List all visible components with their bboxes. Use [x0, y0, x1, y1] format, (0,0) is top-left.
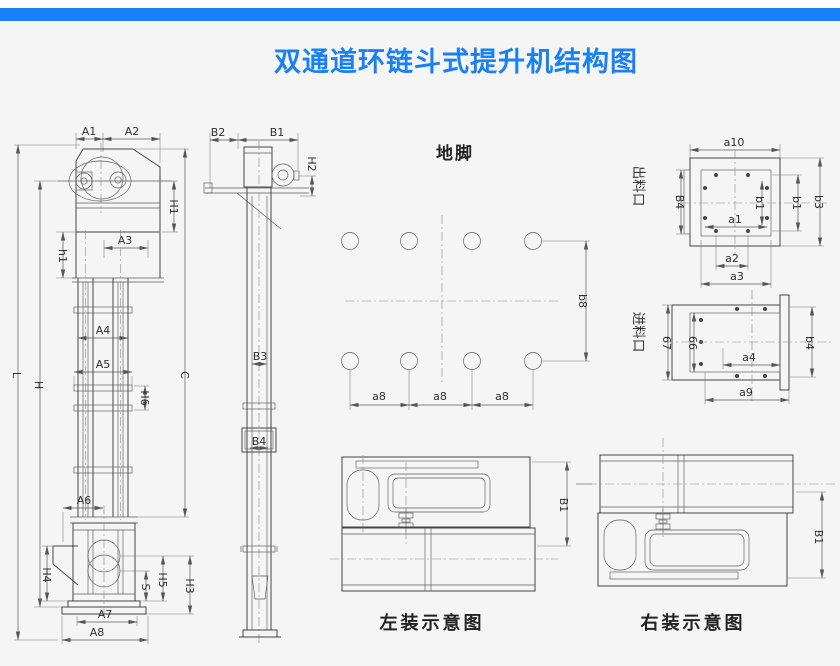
dim-label-A4: A4: [96, 324, 111, 337]
dim-label-A6: A6: [77, 494, 92, 507]
dim-label-b1-inner: b1: [753, 196, 766, 210]
dim-label-B1-left-install: B1: [557, 498, 570, 513]
dim-label-B1-right-install: B1: [812, 530, 825, 545]
dim-label-a8-1: a8: [372, 390, 386, 403]
dim-label-H6: H6: [138, 390, 151, 405]
dim-label-B2: B2: [211, 126, 226, 139]
inlet-flange-detail: 进料口 67 66 a4 b4: [630, 290, 834, 404]
dim-label-a4: a4: [742, 351, 756, 364]
dim-label-B3: B3: [253, 350, 268, 363]
foundation-title: 地脚: [436, 143, 474, 164]
dim-label-A7: A7: [98, 608, 113, 621]
dim-label-a3: a3: [730, 270, 744, 283]
structure-diagram: A1 A2 H1 h1: [0, 0, 840, 666]
dim-label-b1-outer: b1: [790, 196, 803, 210]
dim-label-a1: a1: [728, 213, 742, 226]
dim-label-h1: h1: [56, 249, 69, 263]
dim-label-H1: H1: [167, 199, 180, 214]
dim-label-b4-inlet: b4: [803, 336, 816, 350]
dim-label-B4-outlet: B4: [673, 195, 686, 210]
dim-label-H4: H4: [40, 567, 53, 582]
dim-label-66: 66: [686, 336, 699, 350]
dim-label-a8-2: a8: [433, 390, 447, 403]
outlet-flange-detail: 出料口 a10 B4 b1 b1: [630, 136, 828, 288]
dim-label-A1: A1: [82, 125, 97, 138]
dim-label-B4-side: B4: [252, 435, 267, 448]
dim-label-H3: H3: [183, 578, 196, 593]
dim-label-B1-side: B1: [270, 126, 285, 139]
foundation-plan: 地脚 b8 a8 a8 a8: [342, 143, 591, 410]
dim-label-A5: A5: [96, 358, 111, 371]
dim-label-a9: a9: [739, 386, 753, 399]
inlet-label: 进料口: [630, 312, 646, 353]
dim-label-H: H: [32, 381, 45, 389]
dim-label-A3: A3: [118, 234, 133, 247]
side-view: B2 B1 H2 B3: [204, 126, 318, 643]
dim-label-H5: H5: [156, 572, 169, 587]
dim-label-H2: H2: [305, 156, 318, 171]
right-install-schematic: B1 右装示意图: [588, 438, 836, 634]
dim-label-67: 67: [660, 336, 673, 350]
outlet-label: 出料口: [630, 166, 646, 207]
right-install-caption: 右装示意图: [641, 612, 746, 634]
page: 双通道环链斗式提升机结构图 A1 A2: [0, 0, 840, 666]
dim-label-C: C: [178, 371, 191, 379]
dim-label-b3: b3: [812, 195, 825, 209]
dim-label-a8-3: a8: [495, 390, 509, 403]
left-install-caption: 左装示意图: [380, 612, 485, 634]
left-install-schematic: B1 左装示意图: [330, 455, 592, 634]
front-elevation-view: A1 A2 H1 h1: [10, 125, 196, 644]
dim-label-b8: b8: [576, 294, 589, 308]
dim-label-S: S: [139, 584, 152, 591]
dim-label-a10: a10: [724, 136, 745, 149]
dim-label-A8: A8: [90, 626, 105, 639]
inlet-bolt-dots: [699, 307, 767, 378]
dim-label-a2: a2: [725, 252, 739, 265]
dim-label-A2: A2: [125, 125, 140, 138]
dim-label-L: L: [10, 372, 23, 379]
